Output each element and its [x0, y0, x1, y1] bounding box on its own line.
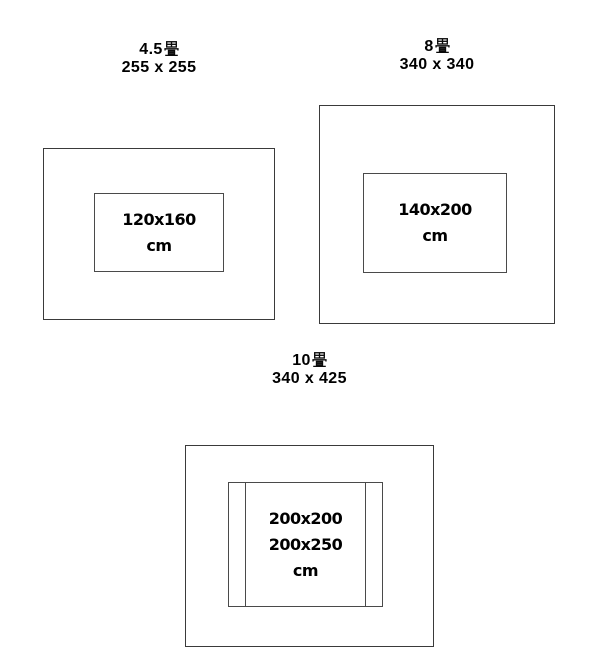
room-dimensions-label: 255 x 255: [43, 59, 275, 77]
rug-outline-200x250: 200x200 200x250 cm: [228, 482, 383, 607]
tatami-count-label: 4.5: [43, 41, 275, 59]
room-label-4-5-tatami: 4.5 255 x 255: [43, 41, 275, 77]
room-label-10-tatami: 10 340 x 425: [185, 352, 434, 388]
rug-unit-label: cm: [146, 233, 171, 259]
rug-section-divider-right: [365, 483, 366, 606]
tatami-count-label: 10: [185, 352, 434, 370]
rug-unit-label: cm: [422, 223, 447, 249]
room-label-8-tatami: 8 340 x 340: [319, 38, 555, 74]
tatami-count-value: 4.5: [139, 41, 162, 58]
tatami-kanji-icon: [164, 41, 179, 56]
tatami-count-label: 8: [319, 38, 555, 56]
rug-size-label: 120x160: [122, 207, 196, 233]
rug-unit-label: cm: [293, 558, 318, 584]
room-dimensions-label: 340 x 340: [319, 56, 555, 74]
rug-section-divider-left: [245, 483, 246, 606]
tatami-count-value: 10: [292, 352, 311, 369]
rug-size-label: 200x250: [269, 532, 343, 558]
room-dimensions-label: 340 x 425: [185, 370, 434, 388]
rug-outline-140x200: 140x200 cm: [363, 173, 507, 273]
tatami-kanji-icon: [435, 38, 450, 53]
rug-size-label: 200x200: [269, 506, 343, 532]
tatami-count-value: 8: [424, 38, 433, 55]
rug-size-label: 140x200: [398, 197, 472, 223]
rug-size-guide-diagram: 4.5 255 x 255 120x160 cm 8 340 x 340 140…: [0, 0, 600, 650]
rug-outline-120x160: 120x160 cm: [94, 193, 224, 272]
tatami-kanji-icon: [312, 352, 327, 367]
